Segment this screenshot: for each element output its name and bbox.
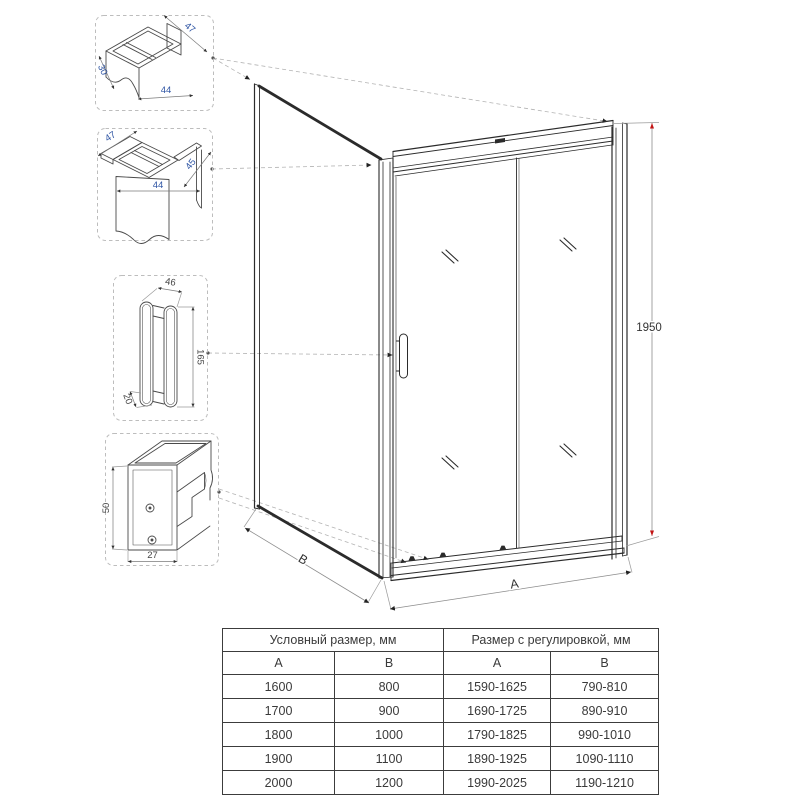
detail-box-corner-profile: 47 44 45 — [98, 129, 213, 244]
table-row: 1700 900 1690-1725 890-910 — [223, 699, 659, 723]
size-cell: 1090-1110 — [551, 747, 659, 771]
size-cell: 1190-1210 — [551, 771, 659, 795]
size-cell: 1590-1625 — [444, 675, 551, 699]
corner-profile-sketch — [101, 137, 202, 244]
side-panel — [255, 84, 383, 578]
detail-box-top-profile: 47 30 44 — [95, 16, 213, 111]
size-cell: 1990-2025 — [444, 771, 551, 795]
depth-dimension-b: B — [244, 509, 381, 603]
detail-border — [106, 434, 219, 566]
table-row: 1900 1100 1890-1925 1090-1110 — [223, 747, 659, 771]
glass-reflection-icon — [560, 238, 576, 251]
glass-marks — [442, 238, 576, 469]
size-cell: 1600 — [223, 675, 335, 699]
dim-165: 165 — [195, 349, 206, 365]
glass-reflection-icon — [560, 444, 576, 457]
size-cell: 1890-1925 — [444, 747, 551, 771]
table-group-header-row: Условный размер, мм Размер с регулировко… — [223, 629, 659, 652]
table-row: 2000 1200 1990-2025 1190-1210 — [223, 771, 659, 795]
size-cell: 790-810 — [551, 675, 659, 699]
dim-46: 46 — [164, 276, 176, 289]
handle-sketch — [140, 302, 177, 407]
size-cell: 800 — [335, 675, 444, 699]
col-header-a1: A — [223, 652, 335, 675]
glass-reflection-icon — [442, 250, 458, 263]
main-enclosure — [255, 84, 628, 581]
size-cell: 890-910 — [551, 699, 659, 723]
dim-44-corner: 44 — [153, 180, 164, 191]
top-rail — [393, 121, 613, 177]
size-cell: 1900 — [223, 747, 335, 771]
group-header-nominal: Условный размер, мм — [223, 629, 444, 652]
right-stile — [612, 123, 627, 559]
door-handle — [397, 334, 408, 378]
dim-50: 50 — [101, 503, 112, 514]
detail-box-bottom-rail: 50 27 — [101, 434, 219, 566]
roller-icon — [409, 556, 416, 560]
bottom-rail-dimensions: 50 27 — [101, 466, 177, 562]
dim-47-corner: 47 — [103, 129, 118, 144]
handle-dimensions: 46 165 20 — [120, 276, 205, 407]
size-cell: 1200 — [335, 771, 444, 795]
roller-icon — [440, 553, 447, 557]
dim-47-top: 47 — [182, 20, 197, 35]
bottom-rail-sketch — [128, 441, 213, 550]
top-roller-icon — [495, 138, 505, 144]
size-cell: 990-1010 — [551, 723, 659, 747]
top-profile-dimensions: 47 30 44 — [95, 16, 207, 100]
detail-box-handle: 46 165 20 — [114, 276, 208, 421]
height-dimension: 1950 — [614, 123, 662, 547]
glass-reflection-icon — [442, 456, 458, 469]
table-col-header-row: A B A B — [223, 652, 659, 675]
col-header-a2: A — [444, 652, 551, 675]
size-cell: 1100 — [335, 747, 444, 771]
corner-post — [379, 158, 393, 578]
size-cell: 900 — [335, 699, 444, 723]
width-label: A — [509, 576, 520, 591]
size-cell: 1790-1825 — [444, 723, 551, 747]
size-cell: 2000 — [223, 771, 335, 795]
size-cell: 1000 — [335, 723, 444, 747]
table-row: 1800 1000 1790-1825 990-1010 — [223, 723, 659, 747]
depth-label: B — [296, 551, 310, 567]
leader-lines — [206, 56, 607, 562]
dim-20: 20 — [120, 392, 134, 406]
detail-border — [96, 16, 214, 111]
size-cell: 1690-1725 — [444, 699, 551, 723]
roller-icon — [500, 546, 507, 550]
dim-27: 27 — [147, 550, 158, 561]
col-header-b2: B — [551, 652, 659, 675]
group-header-adjustable: Размер с регулировкой, мм — [444, 629, 659, 652]
door-panels — [396, 158, 519, 558]
col-header-b1: B — [335, 652, 444, 675]
height-label: 1950 — [636, 322, 662, 334]
size-cell: 1700 — [223, 699, 335, 723]
size-cell: 1800 — [223, 723, 335, 747]
dim-44-top: 44 — [161, 85, 172, 96]
size-table: Условный размер, мм Размер с регулировко… — [222, 628, 659, 795]
table-row: 1600 800 1590-1625 790-810 — [223, 675, 659, 699]
